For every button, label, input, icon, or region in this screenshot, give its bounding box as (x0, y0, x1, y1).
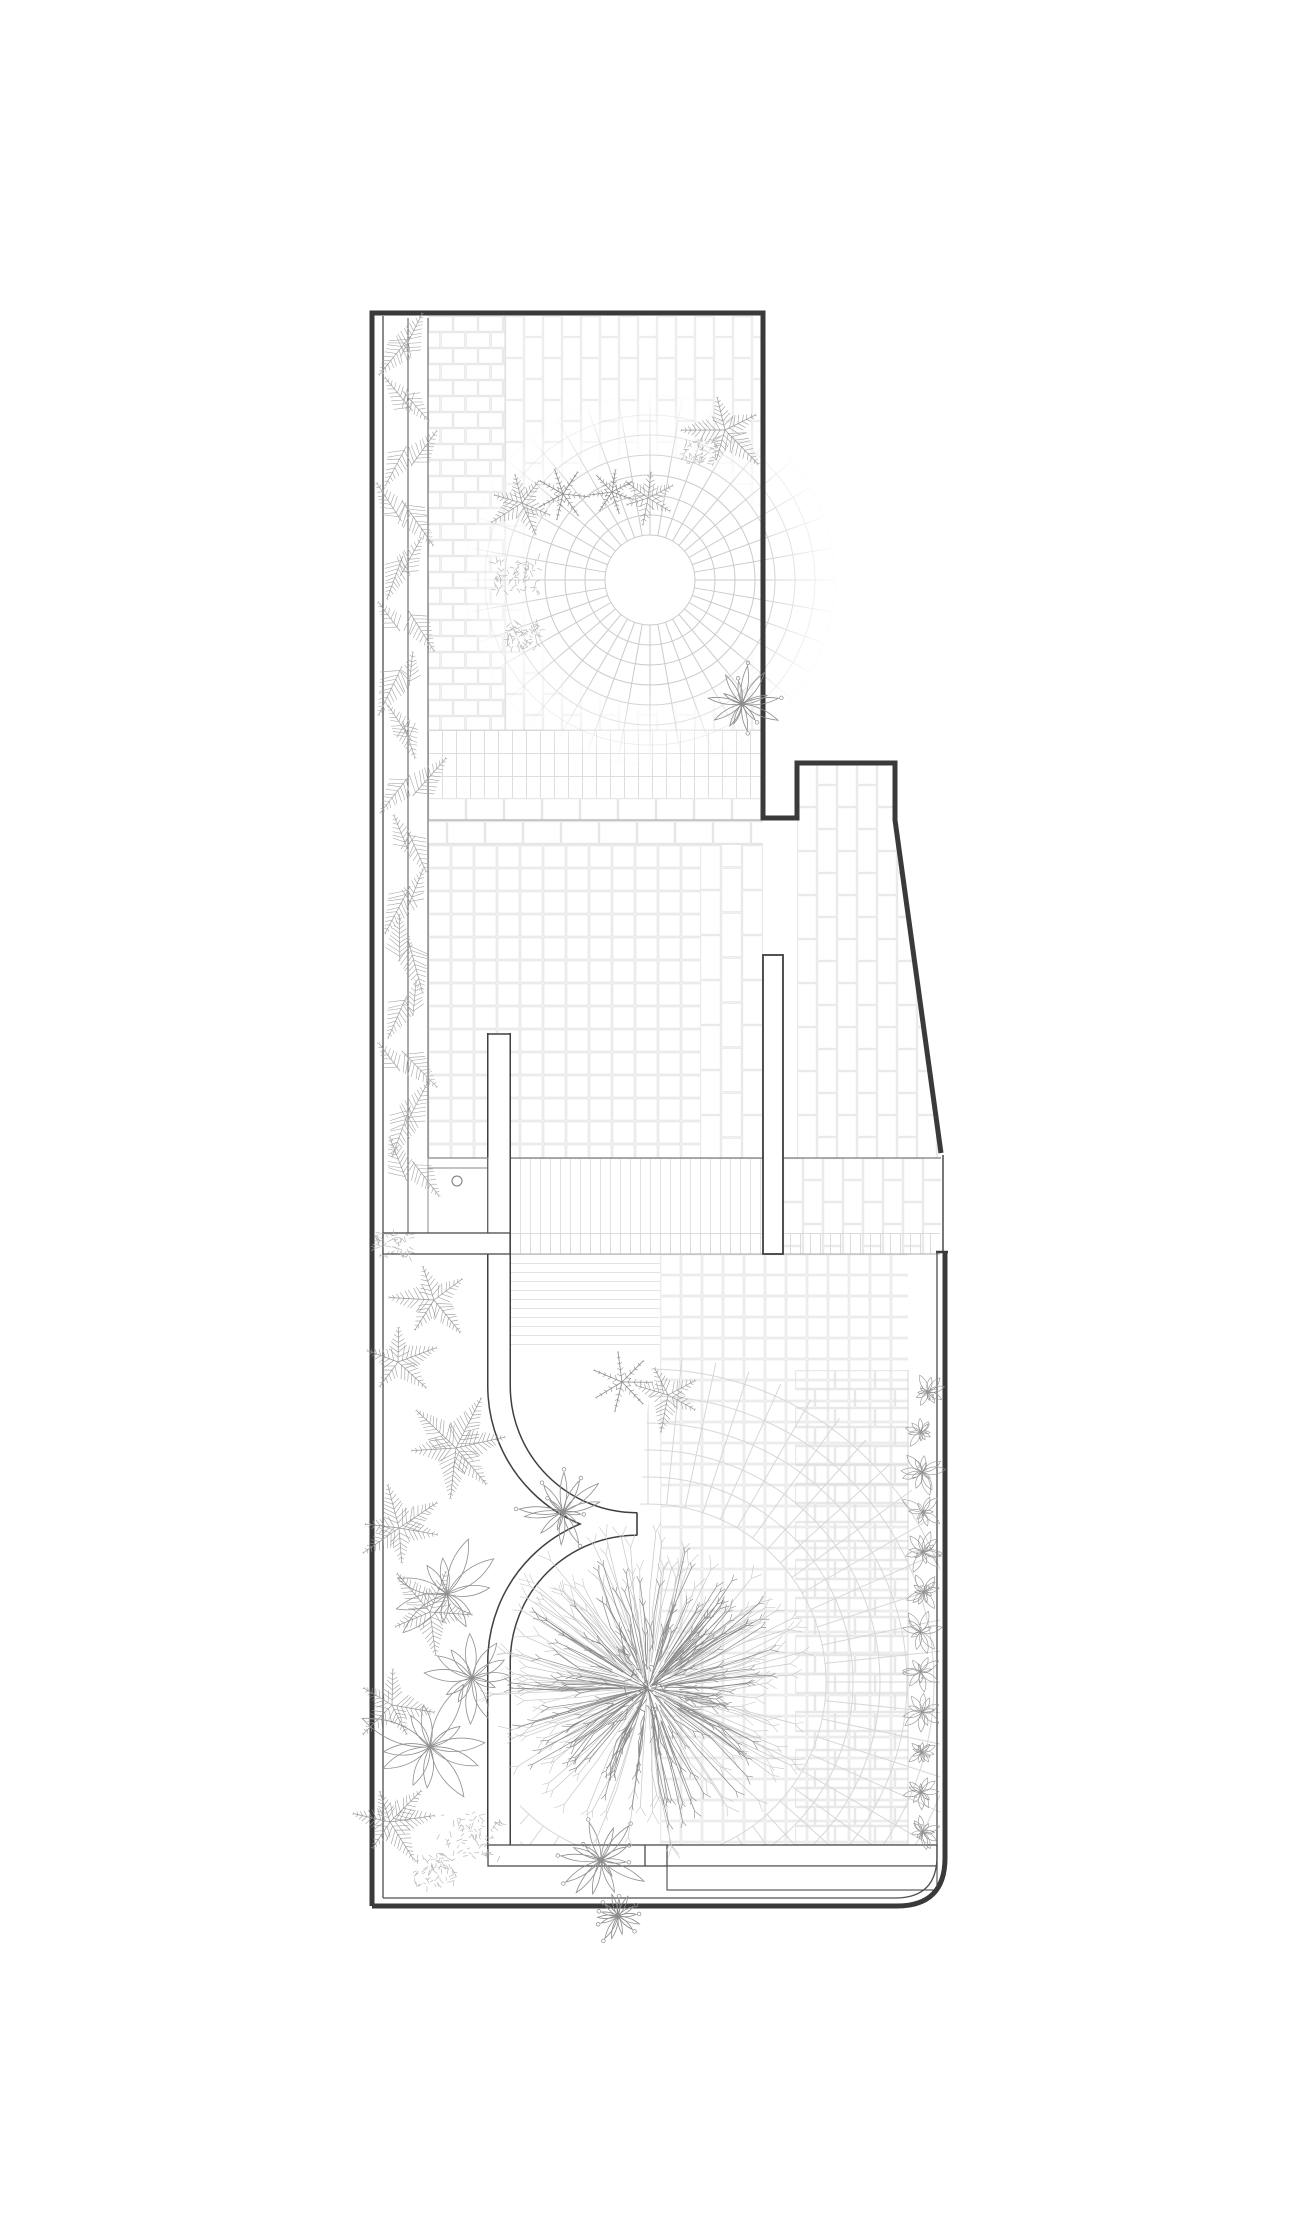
site-plan-drawing (0, 0, 1300, 2228)
freestanding-wall (763, 955, 783, 1254)
left-connector-band (383, 1233, 510, 1254)
step-band-b (667, 1866, 937, 1890)
step-band-a (488, 1845, 937, 1866)
circular-paving (460, 390, 840, 770)
site-plan-page (0, 0, 1300, 2228)
column-room (428, 1158, 488, 1233)
